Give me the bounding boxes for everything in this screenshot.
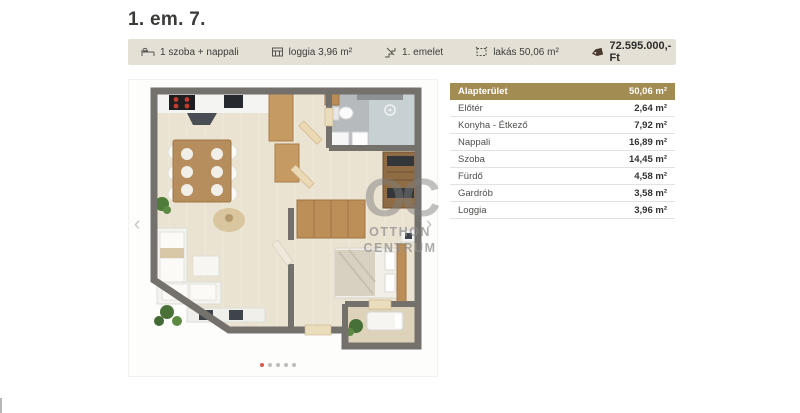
table-row: Konyha - Étkező7,92 m² (450, 117, 675, 134)
gallery-dot[interactable] (292, 363, 296, 367)
gallery-prev-button[interactable]: ‹ (130, 214, 144, 236)
row-label: Gardrób (458, 188, 493, 199)
row-value: 3,96 m² (634, 205, 667, 216)
row-label: Előtér (458, 103, 483, 114)
row-label: Loggia (458, 205, 487, 216)
row-value: 14,45 m² (629, 154, 667, 165)
row-value: 2,64 m² (634, 103, 667, 114)
table-row: Gardrób3,58 m² (450, 185, 675, 202)
price: 72.595.000,- Ft (591, 40, 674, 64)
row-label: Fürdő (458, 171, 483, 182)
table-row: Fürdő4,58 m² (450, 168, 675, 185)
summary-rooms: 1 szoba + nappali (141, 46, 239, 58)
row-label: Nappali (458, 137, 490, 148)
summary-area: lakás 50,06 m² (475, 46, 559, 58)
row-label: Szoba (458, 154, 485, 165)
gallery-dots (129, 363, 427, 367)
row-value: 4,58 m² (634, 171, 667, 182)
left-edge-scroll-artifact (0, 398, 2, 413)
rooms-icon (141, 46, 155, 58)
summary-loggia: loggia 3,96 m² (271, 46, 352, 58)
page-title: 1. em. 7. (128, 9, 676, 31)
summary-floor-label: 1. emelet (402, 47, 443, 58)
area-table-header: Alapterület 50,06 m² (450, 83, 675, 100)
price-tag-icon (591, 46, 604, 59)
header-label: Alapterület (458, 86, 508, 97)
table-row: Nappali16,89 m² (450, 134, 675, 151)
floorplan-gallery: OC OTTHON CENTRUM ‹ › (128, 79, 438, 377)
floor-icon (384, 46, 397, 58)
area-icon (475, 46, 488, 58)
gallery-next-button[interactable]: › (422, 214, 436, 236)
row-value: 3,58 m² (634, 188, 667, 199)
gallery-dot[interactable] (268, 363, 272, 367)
area-table: Alapterület 50,06 m² Előtér2,64 m² Konyh… (450, 83, 675, 377)
row-value: 16,89 m² (629, 137, 667, 148)
header-value: 50,06 m² (629, 86, 667, 97)
table-row: Szoba14,45 m² (450, 151, 675, 168)
table-row: Loggia3,96 m² (450, 202, 675, 219)
gallery-dot[interactable] (260, 363, 264, 367)
gallery-dot[interactable] (284, 363, 288, 367)
summary-area-label: lakás 50,06 m² (493, 47, 559, 58)
price-label: 72.595.000,- Ft (610, 40, 674, 64)
table-row: Előtér2,64 m² (450, 100, 675, 117)
summary-floor: 1. emelet (384, 46, 443, 58)
summary-loggia-label: loggia 3,96 m² (289, 47, 352, 58)
property-summary-bar: 1 szoba + nappali loggia 3,96 m² 1. emel… (128, 39, 676, 65)
row-label: Konyha - Étkező (458, 120, 528, 131)
floorplan-image[interactable] (129, 80, 439, 378)
gallery-dot[interactable] (276, 363, 280, 367)
summary-rooms-label: 1 szoba + nappali (160, 47, 239, 58)
loggia-icon (271, 46, 284, 58)
row-value: 7,92 m² (634, 120, 667, 131)
listing-content: 1. em. 7. 1 szoba + nappali loggia 3,96 … (128, 0, 676, 377)
